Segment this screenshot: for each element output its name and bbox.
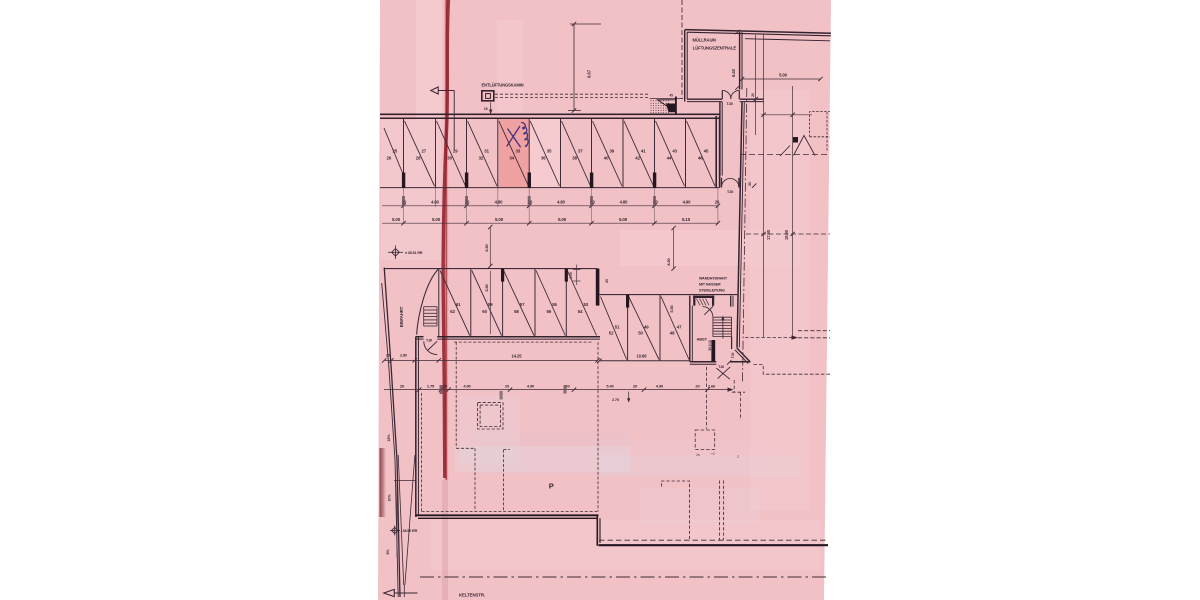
svg-text:17.90: 17.90 (766, 229, 771, 240)
svg-text:4.90: 4.90 (527, 383, 535, 388)
svg-text:20: 20 (751, 93, 755, 97)
svg-text:36: 36 (541, 155, 546, 160)
svg-text:54: 54 (578, 309, 583, 314)
svg-text:+2: +2 (711, 452, 715, 456)
svg-text:2.80: 2.80 (400, 353, 407, 357)
svg-text:30: 30 (447, 155, 452, 160)
svg-text:5.00: 5.00 (779, 73, 787, 78)
svg-text:5.50: 5.50 (669, 304, 674, 312)
svg-text:39: 39 (610, 148, 615, 153)
svg-text:32: 32 (479, 155, 484, 160)
svg-text:20: 20 (386, 353, 390, 357)
svg-text:MÜLLRAUM: MÜLLRAUM (693, 38, 717, 43)
svg-text:MIT NASSER: MIT NASSER (699, 283, 721, 287)
svg-text:41: 41 (641, 148, 646, 153)
svg-text:57: 57 (520, 302, 525, 307)
svg-text:45: 45 (670, 93, 674, 97)
svg-text:25: 25 (393, 148, 398, 153)
svg-text:28: 28 (416, 155, 421, 160)
svg-text:38: 38 (572, 155, 577, 160)
svg-text:20: 20 (715, 199, 720, 204)
svg-text:T.30: T.30 (731, 352, 735, 358)
svg-text:5.10: 5.10 (682, 217, 691, 222)
svg-text:ENTLÜFTUNGSKAMIN: ENTLÜFTUNGSKAMIN (482, 83, 524, 88)
svg-text:6.50: 6.50 (484, 243, 489, 251)
svg-text:4.90: 4.90 (656, 383, 664, 388)
svg-text:LÜFTUNGSZENTRALE: LÜFTUNGSZENTRALE (693, 46, 737, 51)
svg-text:6.40: 6.40 (731, 68, 736, 76)
svg-text:5.50: 5.50 (484, 283, 489, 291)
svg-text:15%: 15% (387, 434, 391, 442)
svg-text:33: 33 (516, 148, 521, 153)
svg-text:56: 56 (547, 309, 552, 314)
svg-text:10%: 10% (387, 494, 391, 502)
svg-text:5.00: 5.00 (619, 217, 628, 222)
svg-text:T.30: T.30 (727, 102, 733, 106)
svg-text:EINFAHRT: EINFAHRT (399, 306, 404, 327)
svg-text:T.30: T.30 (718, 365, 724, 369)
svg-text:19.90: 19.90 (784, 229, 789, 240)
svg-text:43: 43 (672, 148, 677, 153)
svg-text:37: 37 (578, 148, 583, 153)
svg-text:34: 34 (509, 155, 514, 160)
svg-text:51: 51 (615, 325, 620, 330)
svg-text:50: 50 (638, 331, 643, 336)
svg-text:19: 19 (484, 107, 488, 111)
svg-text:T.30: T.30 (426, 339, 432, 343)
svg-text:46: 46 (698, 155, 703, 160)
svg-text:58: 58 (514, 309, 519, 314)
svg-text:4.90: 4.90 (463, 383, 471, 388)
svg-text:52: 52 (609, 331, 614, 336)
svg-text:40: 40 (604, 155, 609, 160)
svg-text:10.66: 10.66 (637, 354, 648, 359)
svg-text:4.80: 4.80 (431, 199, 439, 204)
svg-text:5.00: 5.00 (558, 217, 567, 222)
svg-text:5.40: 5.40 (606, 383, 614, 388)
svg-text:8%: 8% (386, 549, 390, 555)
svg-text:55: 55 (552, 302, 557, 307)
svg-text:1.00: 1.00 (569, 272, 573, 279)
svg-text:2.66: 2.66 (708, 383, 716, 388)
svg-text:31: 31 (484, 148, 489, 153)
svg-text:27: 27 (422, 148, 427, 153)
svg-text:60: 60 (482, 309, 487, 314)
svg-text:2a: 2a (696, 453, 700, 457)
svg-text:6.67: 6.67 (587, 69, 592, 78)
svg-text:ABST: ABST (697, 337, 708, 342)
svg-text:44: 44 (667, 155, 672, 160)
svg-text:P: P (549, 481, 554, 490)
svg-text:20: 20 (748, 182, 752, 186)
svg-text:35: 35 (547, 148, 552, 153)
svg-text:KELTENSTR.: KELTENSTR. (459, 593, 485, 598)
svg-text:8.50: 8.50 (666, 257, 671, 265)
svg-text:42: 42 (635, 155, 640, 160)
svg-text:2.70: 2.70 (612, 398, 619, 402)
svg-text:90·2.10: 90·2.10 (708, 340, 712, 350)
svg-text:4.80: 4.80 (620, 199, 628, 204)
svg-text:WANDHYDRANT: WANDHYDRANT (699, 277, 728, 281)
svg-text:14.25: 14.25 (512, 353, 523, 358)
svg-text:45: 45 (704, 148, 709, 153)
svg-text:STEIGLEITUNG: STEIGLEITUNG (699, 289, 725, 293)
svg-text:T.30: T.30 (727, 190, 733, 194)
svg-text:26: 26 (387, 155, 392, 160)
svg-text:4.80: 4.80 (495, 199, 503, 204)
svg-text:4.90: 4.90 (683, 199, 691, 204)
svg-text:47: 47 (677, 325, 682, 330)
svg-text:± 35.61 RR: ± 35.61 RR (405, 251, 423, 255)
svg-text:20: 20 (605, 279, 609, 283)
svg-text:48: 48 (670, 331, 675, 336)
svg-text:1.75: 1.75 (427, 383, 435, 388)
svg-text:49: 49 (644, 325, 649, 330)
svg-text:53: 53 (584, 302, 589, 307)
svg-text:5.00: 5.00 (392, 217, 401, 222)
svg-text:5.00: 5.00 (432, 217, 441, 222)
svg-text:5.00: 5.00 (495, 217, 504, 222)
svg-text:62: 62 (450, 309, 455, 314)
svg-text:4.80: 4.80 (557, 199, 565, 204)
svg-text:61: 61 (456, 302, 461, 307)
svg-text:- 38.50 RR: - 38.50 RR (401, 529, 418, 533)
